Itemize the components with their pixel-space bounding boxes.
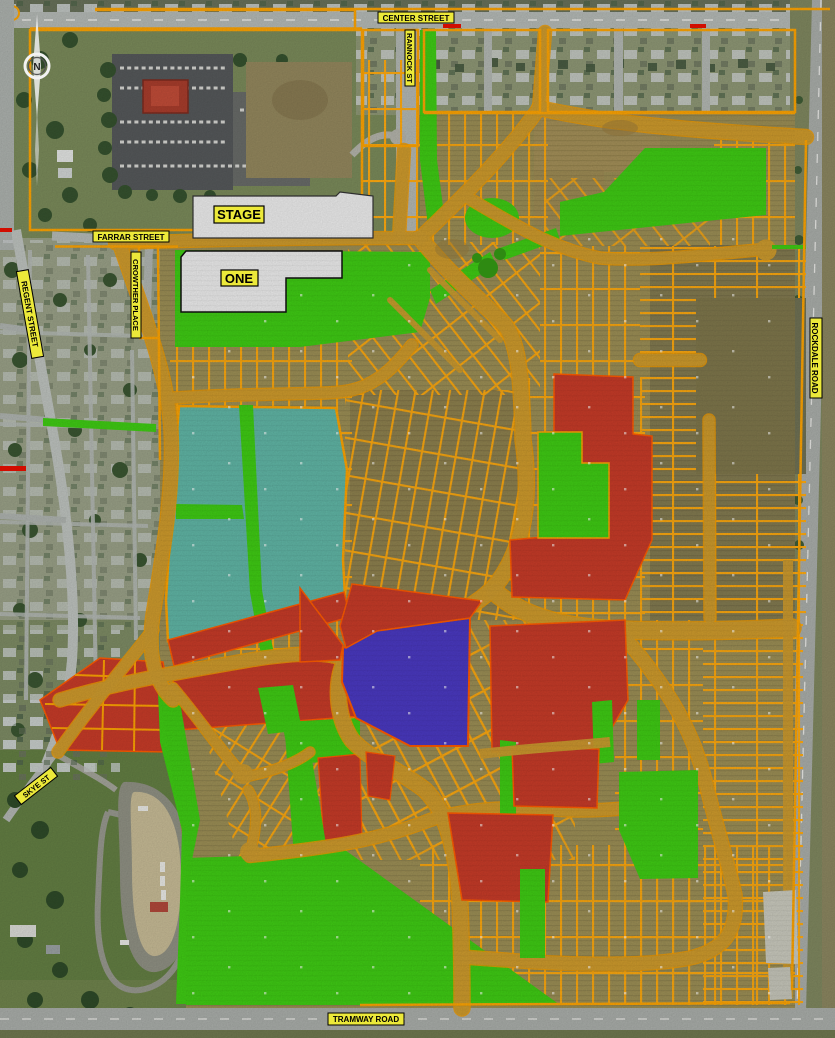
svg-text:CROWTHER PLACE: CROWTHER PLACE — [131, 259, 140, 331]
svg-text:N: N — [33, 62, 40, 73]
svg-text:TRAMWAY ROAD: TRAMWAY ROAD — [333, 1015, 399, 1024]
svg-text:RANNOCK ST: RANNOCK ST — [405, 33, 414, 83]
svg-text:STAGE: STAGE — [217, 207, 261, 222]
svg-text:FARRAR STREET: FARRAR STREET — [97, 233, 164, 242]
svg-text:ROCKDALE ROAD: ROCKDALE ROAD — [810, 322, 819, 393]
svg-text:ONE: ONE — [225, 271, 254, 286]
svg-text:CENTER STREET: CENTER STREET — [383, 14, 450, 23]
